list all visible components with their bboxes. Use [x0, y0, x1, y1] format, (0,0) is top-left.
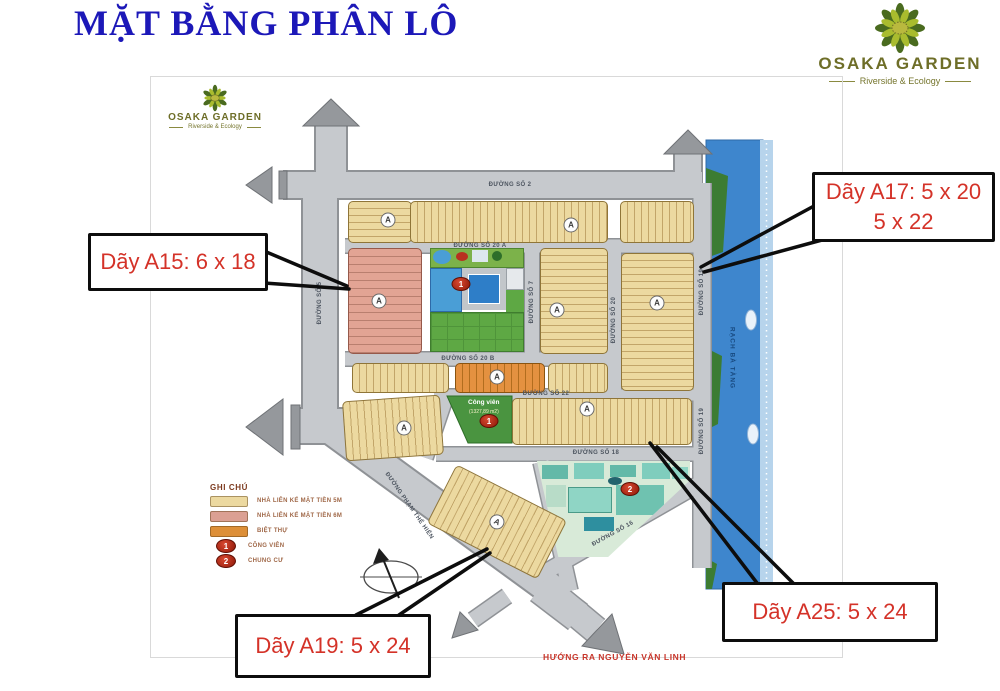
- lot-block-row-west: [352, 363, 449, 393]
- pool-icon: [468, 274, 500, 304]
- block-badge: A: [490, 370, 505, 385]
- legend-swatch-villa: [210, 526, 248, 537]
- legend-row: NHÀ LIÊN KẾ MẶT TIỀN 5M: [210, 496, 390, 506]
- street-label-so18: ĐƯỜNG SỐ 18: [573, 450, 620, 456]
- brand-name: OSAKA GARDEN: [800, 54, 1000, 74]
- street-label-so19-lower: ĐƯỜNG SỐ 19: [699, 408, 705, 455]
- park-marker: 1: [480, 414, 499, 428]
- legend-swatch-6m: [210, 511, 248, 522]
- legend-marker-apartment: 2: [216, 554, 236, 568]
- park-marker: 1: [452, 277, 471, 291]
- callout-a15: Dãy A15: 6 x 18: [88, 233, 268, 291]
- block-badge: A: [564, 218, 579, 233]
- legend-row: NHÀ LIÊN KẾ MẶT TIỀN 6M: [210, 511, 390, 521]
- legend-label: BIỆT THỰ: [257, 528, 288, 534]
- brand-logo-map: OSAKA GARDEN Riverside & Ecology: [150, 84, 280, 130]
- brand-logo-header: OSAKA GARDEN Riverside & Ecology: [800, 2, 1000, 86]
- legend-marker-park: 1: [216, 539, 236, 553]
- legend: GHI CHÚ NHÀ LIÊN KẾ MẶT TIỀN 5M NHÀ LIÊN…: [210, 483, 390, 571]
- lot-block-southwest: [342, 395, 444, 462]
- block-badge: A: [372, 294, 387, 309]
- block-badge: A: [487, 512, 507, 532]
- block-badge: A: [650, 296, 665, 311]
- pavilion-icon: [472, 250, 488, 262]
- legend-title: GHI CHÚ: [210, 483, 390, 492]
- apartment-fountain: [608, 477, 622, 485]
- block-badge: A: [550, 303, 565, 318]
- flower-bed-icon: [456, 252, 468, 261]
- green-patch: [506, 290, 524, 312]
- apartment-building: [568, 487, 612, 513]
- street-label-so20a: ĐƯỜNG SỐ 20 A: [453, 243, 506, 249]
- apartment-marker: 2: [621, 482, 640, 496]
- lot-block-a17: [621, 253, 694, 391]
- lot-block-top-main: [410, 201, 608, 243]
- callout-a25: Dãy A25: 5 x 24: [722, 582, 938, 642]
- legend-row: 1 CÔNG VIÊN: [210, 541, 390, 551]
- street-label-so20b: ĐƯỜNG SỐ 20 B: [441, 356, 494, 362]
- osaka-garden-flower-icon: [868, 2, 932, 54]
- tree-icon: [492, 251, 502, 261]
- apartment-building: [672, 467, 688, 479]
- street-label-so22: ĐƯỜNG SỐ 22: [523, 391, 570, 397]
- park-name-label: Công viên: [468, 399, 499, 406]
- block-badge: A: [397, 421, 412, 436]
- site-plan-page: MẶT BẰNG PHÂN LÔ: [0, 0, 1000, 691]
- apartment-building: [610, 465, 636, 477]
- callout-a19: Dãy A19: 5 x 24: [235, 614, 431, 678]
- exit-direction-label: HƯỚNG RA NGUYỄN VĂN LINH: [543, 652, 686, 662]
- callout-a17-line2: 5 x 22: [874, 207, 934, 237]
- block-badge: A: [580, 402, 595, 417]
- apartment-building: [642, 463, 670, 479]
- legend-row: 2 CHUNG CƯ: [210, 556, 390, 566]
- tagline-dash: [247, 127, 261, 128]
- tagline-dash: [945, 81, 971, 82]
- legend-label: CHUNG CƯ: [248, 558, 283, 564]
- brand-name: OSAKA GARDEN: [150, 112, 280, 123]
- apartment-building: [542, 465, 568, 479]
- street-label-so20: ĐƯỜNG SỐ 20: [611, 297, 617, 344]
- clubhouse-icon: [506, 268, 524, 290]
- lot-block-top-east: [620, 201, 694, 243]
- legend-label: NHÀ LIÊN KẾ MẶT TIỀN 6M: [257, 513, 342, 519]
- pond-icon: [433, 250, 451, 264]
- street-label-so5: ĐƯỜNG SỐ 5: [317, 282, 323, 325]
- brand-tagline: Riverside & Ecology: [150, 124, 280, 130]
- lot-block-row-east: [548, 363, 608, 393]
- brand-tagline-text: Riverside & Ecology: [860, 76, 941, 86]
- callout-a25-text: Dãy A25: 5 x 24: [752, 597, 907, 627]
- legend-label: NHÀ LIÊN KẾ MẶT TIỀN 5M: [257, 498, 342, 504]
- osaka-garden-flower-icon: [198, 84, 232, 112]
- legend-swatch-5m: [210, 496, 248, 507]
- callout-a15-text: Dãy A15: 6 x 18: [100, 247, 255, 277]
- street-label-so19-upper: ĐƯỜNG SỐ 19: [699, 269, 705, 316]
- river-label: RẠCH BÀ TÀNG: [729, 327, 736, 389]
- page-title: MẶT BẰNG PHÂN LÔ: [74, 2, 458, 44]
- block-badge: A: [381, 213, 396, 228]
- brand-tagline-text: Riverside & Ecology: [188, 124, 242, 130]
- lot-block-a25: [512, 398, 692, 445]
- legend-row: BIỆT THỰ: [210, 526, 390, 536]
- callout-a19-text: Dãy A19: 5 x 24: [255, 631, 410, 661]
- apartment-building: [574, 463, 604, 479]
- tagline-dash: [169, 127, 183, 128]
- street-label-so2: ĐƯỜNG SỐ 2: [489, 182, 532, 188]
- street-label-so7: ĐƯỜNG SỐ 7: [529, 281, 535, 324]
- park-amenity-block: [430, 248, 524, 352]
- apartment-plaza: [546, 485, 566, 507]
- callout-a17-line1: Dãy A17: 5 x 20: [826, 177, 981, 207]
- lot-block-mid: [540, 248, 608, 354]
- apartment-pool: [584, 517, 614, 531]
- legend-label: CÔNG VIÊN: [248, 543, 284, 549]
- callout-a17: Dãy A17: 5 x 20 5 x 22: [812, 172, 995, 242]
- lawn-area: [430, 312, 524, 352]
